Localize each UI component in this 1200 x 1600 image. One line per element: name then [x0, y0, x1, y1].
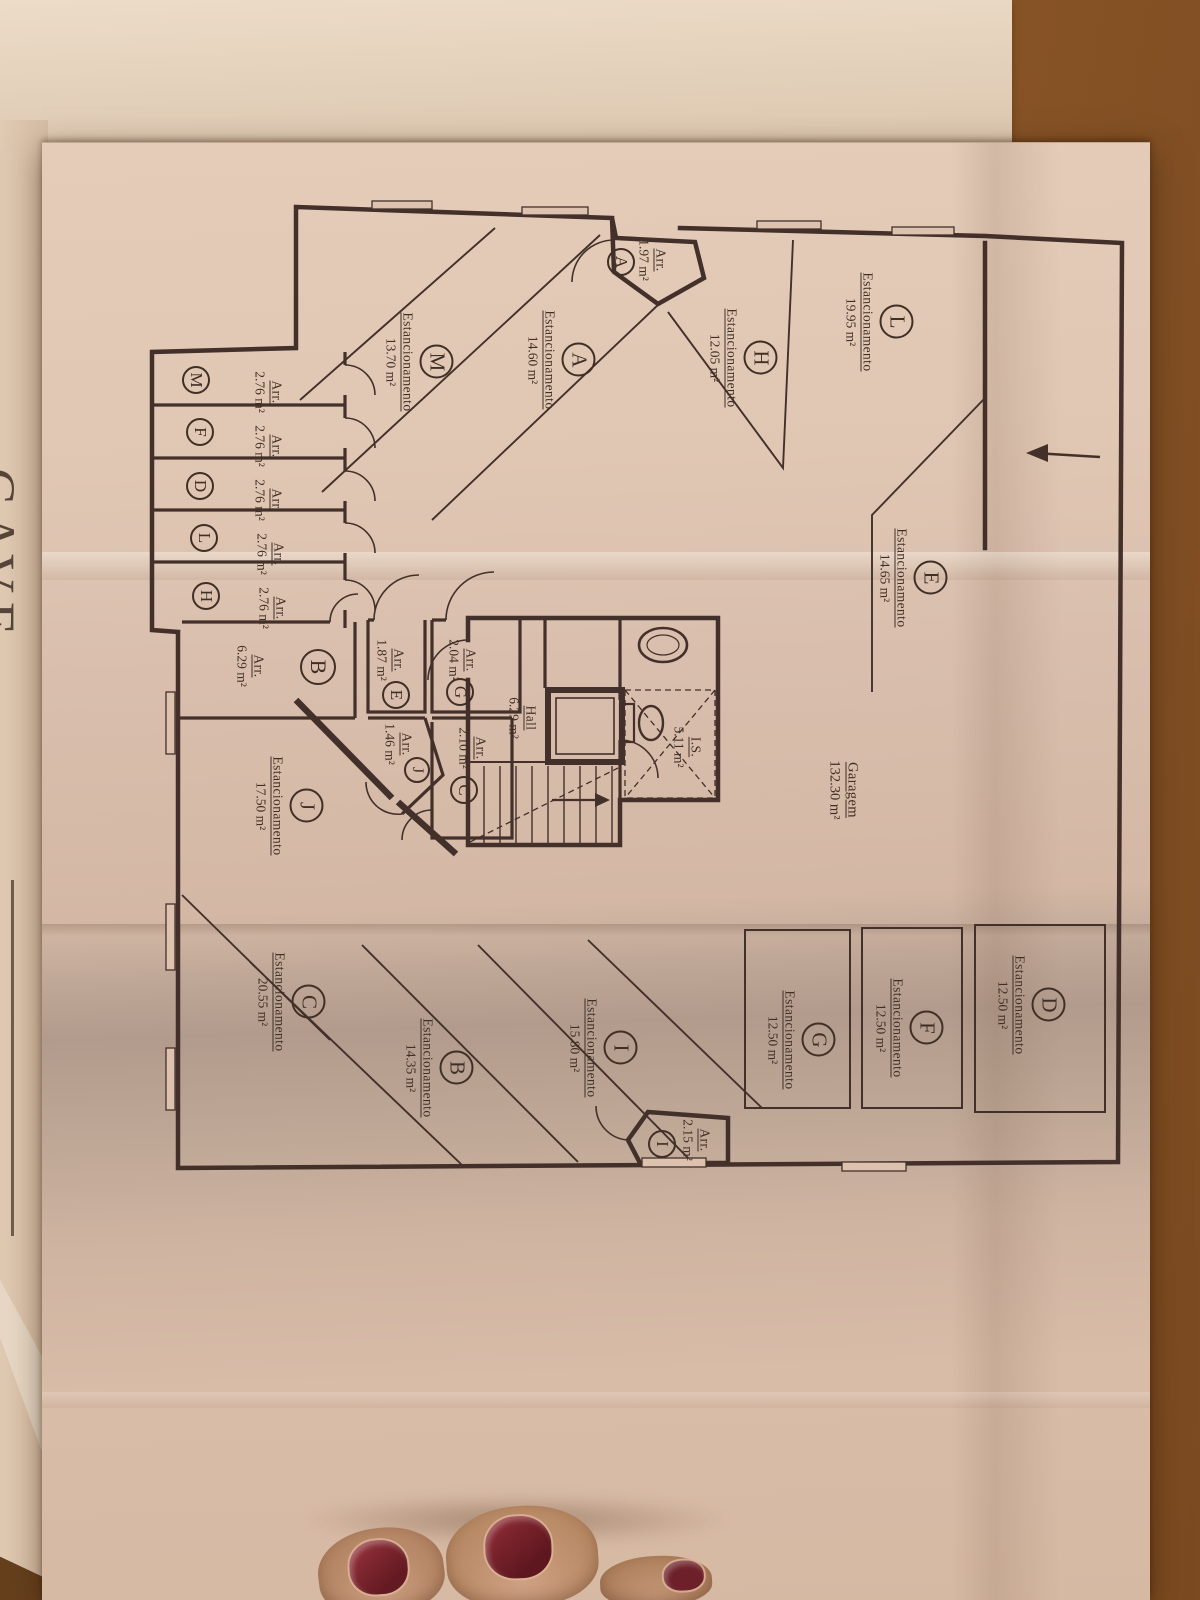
storage-area: 1.87 m²	[374, 639, 390, 681]
parking-space-M: M Estancionamento 13.70 m²	[383, 313, 454, 412]
storage-circle-A: A	[607, 248, 635, 276]
storage-area: 1.97 m²	[636, 239, 652, 281]
parking-name: Estancionamento	[894, 529, 910, 628]
storage-circle-H: H	[192, 582, 220, 610]
storage-circle-L: L	[190, 524, 218, 552]
parking-area: 12.50 m²	[995, 981, 1011, 1029]
hall-area: 6.29 m²	[506, 697, 522, 739]
storage-area: 2.76 m²	[252, 479, 268, 521]
storage-circle-I: I	[648, 1130, 676, 1158]
parking-name: Estancionamento	[272, 953, 288, 1052]
storage-label-D: Arr. 2.76 m²	[252, 479, 285, 521]
storage-area: 2.04 m²	[446, 639, 462, 681]
parking-area: 13.70 m²	[383, 338, 399, 386]
parking-area: 19.95 m²	[843, 298, 859, 346]
storage-circle-M: M	[182, 366, 210, 394]
storage-circle-D: D	[186, 472, 214, 500]
fingernail	[663, 1560, 705, 1592]
parking-circle-L: L	[880, 305, 914, 339]
storage-name: Arr.	[269, 489, 285, 512]
storage-label-G: Arr. 2.04 m²	[446, 639, 479, 681]
parking-circle-A: A	[562, 343, 596, 377]
parking-area: 14.65 m²	[877, 554, 893, 602]
storage-name: Arr.	[473, 737, 489, 760]
parking-name: Estancionamento	[724, 309, 740, 408]
parking-name: Estancionamento	[860, 273, 876, 372]
parking-circle-C: C	[292, 985, 326, 1019]
parking-name: Estancionamento	[584, 999, 600, 1098]
elevator-shaft	[548, 690, 622, 762]
storage-name: Arr.	[463, 649, 479, 672]
storage-label-H: Arr. 2.76 m²	[256, 587, 289, 629]
storage-name: Arr.	[251, 655, 267, 678]
interior-walls	[152, 352, 620, 838]
parking-space-D: D Estancionamento 12.50 m²	[995, 956, 1066, 1055]
storage-circle-E: E	[382, 681, 410, 709]
parking-space-C: C Estancionamento 20.55 m²	[255, 953, 326, 1052]
storage-name: Arr.	[269, 381, 285, 404]
storage-circle-F: F	[186, 418, 214, 446]
storage-circle-C: C	[450, 776, 478, 804]
parking-area: 14.60 m²	[525, 336, 541, 384]
parking-circle-E: E	[914, 561, 948, 595]
storage-area: 2.76 m²	[256, 587, 272, 629]
photo-of-floorplan: CAVE	[0, 0, 1200, 1600]
storage-name: Arr.	[391, 649, 407, 672]
storage-label-A: Arr. 1.97 m²	[636, 239, 669, 281]
parking-space-H: H Estancionamento 12.05 m²	[707, 309, 778, 408]
parking-area: 12.05 m²	[707, 334, 723, 382]
storage-area: 2.15 m²	[680, 1119, 696, 1161]
storage-name: Arr.	[271, 543, 287, 566]
parking-space-E: E Estancionamento 14.65 m²	[877, 529, 948, 628]
parking-space-A: A Estancionamento 14.60 m²	[525, 311, 596, 410]
storage-name: Arr.	[697, 1129, 713, 1152]
garage-area: 132.30 m²	[826, 760, 843, 819]
parking-name: Estancionamento	[420, 1019, 436, 1118]
parking-circle-I: I	[604, 1031, 638, 1065]
parking-area: 12.50 m²	[765, 1016, 781, 1064]
parking-area: 20.55 m²	[255, 978, 271, 1026]
storage-area: 1.46 m²	[382, 723, 398, 765]
parking-area: 12.50 m²	[873, 1004, 889, 1052]
wc-name: I.S.	[688, 737, 704, 757]
storage-area: 6.29 m²	[234, 645, 250, 687]
parking-area: 14.35 m²	[403, 1044, 419, 1092]
parking-circle-M: M	[420, 345, 454, 379]
parking-space-F: F Estancionamento 12.50 m²	[873, 979, 944, 1078]
fingernail	[484, 1515, 552, 1579]
parking-area: 15.80 m²	[567, 1024, 583, 1072]
storage-label-E: Arr. 1.87 m²	[374, 639, 407, 681]
parking-circle-B: B	[440, 1051, 474, 1085]
storage-name: Arr.	[269, 435, 285, 458]
storage-label-C: Arr. 2.10 m²	[456, 727, 489, 769]
storage-name: Arr.	[653, 249, 669, 272]
parking-name: Estancionamento	[270, 757, 286, 856]
parking-name: Estancionamento	[782, 991, 798, 1090]
hall-label: Hall 6.29 m²	[506, 697, 539, 739]
storage-name: Arr.	[399, 733, 415, 756]
storage-label-L: Arr. 2.76 m²	[254, 533, 287, 575]
parking-area: 17.50 m²	[253, 782, 269, 830]
parking-name: Estancionamento	[542, 311, 558, 410]
parking-space-B: B Estancionamento 14.35 m²	[403, 1019, 474, 1118]
storage-circle-G: G	[446, 678, 474, 706]
garage-name: Garagem	[844, 762, 861, 818]
hall-name: Hall	[523, 706, 539, 731]
parking-space-G: G Estancionamento 12.50 m²	[765, 991, 836, 1090]
storage-label-M: Arr. 2.76 m²	[252, 371, 285, 413]
parking-space-L: L Estancionamento 19.95 m²	[843, 273, 914, 372]
wc-area: 5.11 m²	[671, 726, 687, 767]
storage-name: Arr.	[273, 597, 289, 620]
parking-space-I: I Estancionamento 15.80 m²	[567, 999, 638, 1098]
storage-label-F: Arr. 2.76 m²	[252, 425, 285, 467]
storage-area: 2.76 m²	[252, 425, 268, 467]
floorplan-drawing	[0, 0, 1200, 1600]
parking-space-J: J Estancionamento 17.50 m²	[253, 757, 324, 856]
parking-circle-H: H	[744, 341, 778, 375]
parking-circle-D: D	[1032, 988, 1066, 1022]
storage-circle-J: J	[404, 757, 430, 783]
storage-area: 2.10 m²	[456, 727, 472, 769]
fingernail	[348, 1538, 410, 1596]
parking-name: Estancionamento	[890, 979, 906, 1078]
storage-area: 2.76 m²	[252, 371, 268, 413]
parking-name: Estancionamento	[400, 313, 416, 412]
parking-name: Estancionamento	[1012, 956, 1028, 1055]
parking-circle-F: F	[910, 1011, 944, 1045]
garage-label: Garagem 132.30 m²	[826, 760, 861, 819]
storage-circle-B: B	[300, 649, 336, 685]
storage-label-I: Arr. 2.15 m²	[680, 1119, 713, 1161]
storage-label-B: Arr. 6.29 m²	[234, 645, 267, 687]
storage-area: 2.76 m²	[254, 533, 270, 575]
parking-circle-J: J	[290, 789, 324, 823]
parking-circle-G: G	[802, 1023, 836, 1057]
wc-label: I.S. 5.11 m²	[671, 726, 704, 767]
